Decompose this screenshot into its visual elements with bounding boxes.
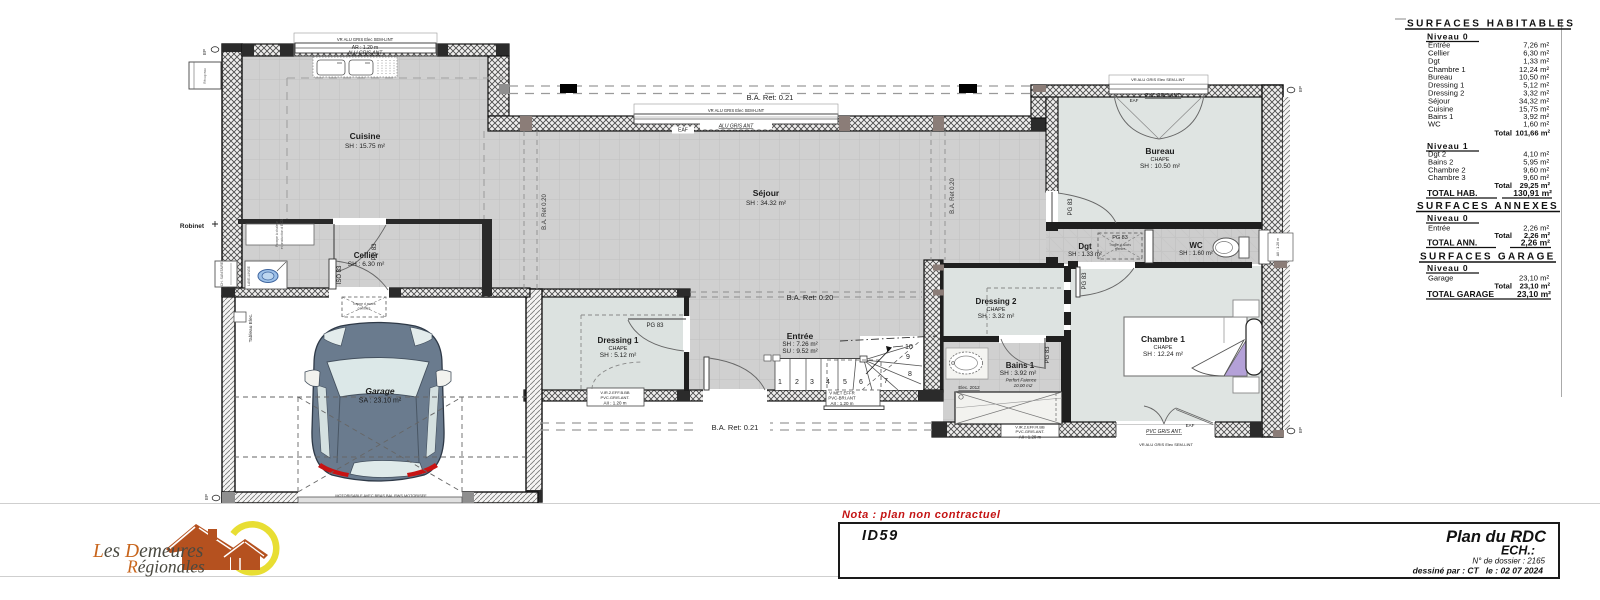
svg-text:SURFACES ANNEXES: SURFACES ANNEXES bbox=[1417, 201, 1559, 212]
svg-text:MOTORISABLE AVEC BRAS BAL RWS: MOTORISABLE AVEC BRAS BAL RWS MOTORISEE bbox=[335, 494, 427, 498]
svg-text:AII : 1.20 m: AII : 1.20 m bbox=[1276, 238, 1280, 256]
svg-text:Total: Total bbox=[1494, 181, 1512, 190]
svg-text:PVC.GRIS.ANT.: PVC.GRIS.ANT. bbox=[601, 395, 630, 400]
svg-text:ECH.:: ECH.: bbox=[1501, 544, 1535, 558]
svg-text:Régionales: Régionales bbox=[126, 557, 205, 577]
svg-text:SH : 3.32 m²: SH : 3.32 m² bbox=[978, 313, 1015, 320]
svg-text:PG 83: PG 83 bbox=[646, 323, 664, 329]
svg-text:SURFACES HABITABLES: SURFACES HABITABLES bbox=[1407, 19, 1575, 30]
svg-text:EAF: EAF bbox=[1186, 423, 1195, 428]
svg-text:7: 7 bbox=[884, 378, 888, 385]
svg-text:dessiné par : CT le : 02 07: dessiné par : CT le : 02 07 2024 bbox=[1413, 566, 1544, 576]
svg-text:SA : 23.10 m²: SA : 23.10 m² bbox=[359, 398, 402, 405]
svg-text:SURFACES GARAGE: SURFACES GARAGE bbox=[1420, 252, 1556, 263]
svg-text:Chambre 3: Chambre 3 bbox=[1428, 173, 1466, 182]
svg-text:9: 9 bbox=[906, 354, 910, 361]
svg-text:101,66 m²: 101,66 m² bbox=[1515, 129, 1550, 138]
svg-text:1,60 m²: 1,60 m² bbox=[1523, 120, 1549, 129]
svg-text:CH. SANITAIRE: CH. SANITAIRE bbox=[220, 261, 224, 286]
svg-text:EP: EP bbox=[1298, 86, 1303, 92]
svg-text:Entrée: Entrée bbox=[787, 331, 814, 341]
svg-text:Séjour: Séjour bbox=[753, 188, 780, 198]
svg-text:EAF: EAF bbox=[678, 128, 688, 134]
svg-text:SH : 12.24 m²: SH : 12.24 m² bbox=[1143, 351, 1184, 358]
svg-text:Nota : plan non contractuel: Nota : plan non contractuel bbox=[842, 509, 1001, 521]
svg-text:SH : 34.32 m²: SH : 34.32 m² bbox=[746, 200, 787, 207]
svg-text:Perfort Faience: Perfort Faience bbox=[1006, 378, 1037, 383]
svg-text:Elec. 2012: Elec. 2012 bbox=[958, 385, 980, 390]
svg-text:B.A. Ret: 0.20: B.A. Ret: 0.20 bbox=[787, 293, 834, 302]
svg-text:WC: WC bbox=[1428, 120, 1441, 129]
svg-text:10.00 m2: 10.00 m2 bbox=[1014, 383, 1033, 388]
svg-text:TOTAL ANN.: TOTAL ANN. bbox=[1427, 238, 1477, 248]
svg-text:SH : 1.60 m²: SH : 1.60 m² bbox=[1179, 251, 1213, 257]
svg-text:B.A. Ret: 0.21: B.A. Ret: 0.21 bbox=[747, 93, 794, 102]
svg-text:Trappe d accès: Trappe d accès bbox=[352, 302, 376, 306]
svg-text:8: 8 bbox=[908, 371, 912, 378]
svg-text:ALU GRIS ANT: ALU GRIS ANT bbox=[718, 124, 754, 130]
svg-text:Pompe à chaleur: Pompe à chaleur bbox=[275, 220, 279, 247]
svg-text:Robinet: Robinet bbox=[180, 223, 205, 230]
svg-text:PVC.GRIS.ANT.: PVC.GRIS.ANT. bbox=[1145, 93, 1181, 99]
svg-text:2: 2 bbox=[795, 379, 799, 386]
svg-text:Dressing 1: Dressing 1 bbox=[598, 336, 639, 345]
svg-text:et production d ECS: et production d ECS bbox=[280, 218, 284, 249]
svg-text:VR ALU GRIS Elec SEM-LINT: VR ALU GRIS Elec SEM-LINT bbox=[1139, 442, 1193, 447]
svg-text:SH : 3.92 m²: SH : 3.92 m² bbox=[1000, 370, 1037, 377]
svg-text:EP: EP bbox=[202, 49, 207, 55]
svg-text:Entrée: Entrée bbox=[1428, 224, 1450, 233]
svg-text:23,10 m²: 23,10 m² bbox=[1517, 289, 1551, 299]
svg-text:Niveau 0: Niveau 0 bbox=[1427, 213, 1468, 223]
svg-text:3: 3 bbox=[810, 379, 814, 386]
svg-text:B.A. Ret 0.20: B.A. Ret 0.20 bbox=[542, 193, 548, 229]
svg-text:B.A. Ret 0.20: B.A. Ret 0.20 bbox=[950, 177, 956, 213]
svg-text:Tableau Elec.: Tableau Elec. bbox=[248, 314, 254, 343]
svg-text:AII : 1.20 m: AII : 1.20 m bbox=[830, 401, 853, 406]
svg-text:WC: WC bbox=[1189, 241, 1203, 250]
svg-text:PVC GRIS ANT.: PVC GRIS ANT. bbox=[1146, 429, 1182, 435]
svg-text:ISO 83: ISO 83 bbox=[337, 265, 343, 284]
svg-text:Total: Total bbox=[1494, 231, 1512, 240]
svg-text:Chambre 1: Chambre 1 bbox=[1141, 334, 1185, 344]
svg-text:AII : 1.20 m: AII : 1.20 m bbox=[1019, 435, 1042, 440]
svg-text:VR ALU GRIS Elec SEM-LINT: VR ALU GRIS Elec SEM-LINT bbox=[1131, 77, 1185, 82]
svg-text:TOTAL HAB.: TOTAL HAB. bbox=[1427, 188, 1478, 198]
svg-text:Garage: Garage bbox=[365, 386, 395, 396]
svg-text:Total: Total bbox=[1494, 282, 1512, 291]
svg-text:B.A. Ret: 0.21: B.A. Ret: 0.21 bbox=[712, 423, 759, 432]
svg-text:5: 5 bbox=[843, 379, 847, 386]
svg-text:Récup eau: Récup eau bbox=[203, 68, 207, 84]
svg-text:PVC-BRI.ANT: PVC-BRI.ANT bbox=[828, 396, 856, 401]
svg-text:SH : 5.12 m²: SH : 5.12 m² bbox=[600, 352, 637, 359]
svg-text:VR ALU GRIS Elec SEM-LINT: VR ALU GRIS Elec SEM-LINT bbox=[337, 37, 394, 42]
svg-text:Cellier: Cellier bbox=[354, 251, 378, 260]
svg-text:SH : 10.50 m²: SH : 10.50 m² bbox=[1140, 163, 1181, 170]
svg-text:SU : 9.52 m²: SU : 9.52 m² bbox=[782, 348, 817, 355]
svg-text:Total: Total bbox=[1494, 129, 1512, 138]
svg-text:VR ALU GRIS Elec SEM-LINT: VR ALU GRIS Elec SEM-LINT bbox=[708, 108, 765, 113]
svg-text:PVC.GRIS.ANT.: PVC.GRIS.ANT. bbox=[1016, 429, 1045, 434]
svg-text:SH : 6.30 m²: SH : 6.30 m² bbox=[348, 261, 385, 268]
svg-text:combles: combles bbox=[358, 307, 371, 311]
svg-text:ID59: ID59 bbox=[862, 528, 899, 544]
svg-text:LAVE-LINGE: LAVE-LINGE bbox=[247, 265, 251, 285]
svg-text:PG 83: PG 83 bbox=[1068, 198, 1074, 216]
svg-text:EAF: EAF bbox=[1130, 98, 1139, 103]
svg-text:4: 4 bbox=[826, 379, 830, 386]
svg-text:PG 83: PG 83 bbox=[1112, 235, 1128, 241]
svg-text:PG 83: PG 83 bbox=[1082, 272, 1088, 290]
svg-text:Garage: Garage bbox=[1428, 274, 1453, 283]
svg-text:TOTAL GARAGE: TOTAL GARAGE bbox=[1427, 289, 1494, 299]
svg-text:130,91 m²: 130,91 m² bbox=[1513, 188, 1552, 198]
svg-text:PG 83: PG 83 bbox=[1045, 346, 1051, 364]
svg-text:AII : 1.20 m: AII : 1.20 m bbox=[603, 401, 626, 406]
svg-text:grenier: grenier bbox=[1115, 247, 1126, 251]
svg-text:N° de dossier : 2165: N° de dossier : 2165 bbox=[1472, 557, 1545, 566]
svg-text:Dgt: Dgt bbox=[1078, 242, 1092, 251]
svg-text:10: 10 bbox=[905, 344, 913, 351]
svg-text:Dressing 2: Dressing 2 bbox=[976, 297, 1017, 306]
svg-text:1: 1 bbox=[778, 379, 782, 386]
svg-text:6: 6 bbox=[859, 379, 863, 386]
svg-text:SH : 7.26 m²: SH : 7.26 m² bbox=[782, 341, 817, 348]
svg-text:SH : 1.33 m²: SH : 1.33 m² bbox=[1068, 252, 1102, 258]
svg-text:SH : 15.75 m²: SH : 15.75 m² bbox=[345, 143, 386, 150]
svg-text:Niveau 0: Niveau 0 bbox=[1427, 263, 1468, 273]
svg-text:Cuisine: Cuisine bbox=[350, 131, 381, 141]
svg-text:Bains 1: Bains 1 bbox=[1006, 361, 1035, 370]
svg-text:EP: EP bbox=[1298, 427, 1303, 433]
svg-text:ALU GRIS ANT: ALU GRIS ANT bbox=[347, 51, 383, 57]
svg-text:2,26 m²: 2,26 m² bbox=[1521, 238, 1550, 248]
svg-text:Bureau: Bureau bbox=[1145, 146, 1174, 156]
svg-text:EP: EP bbox=[204, 494, 209, 500]
